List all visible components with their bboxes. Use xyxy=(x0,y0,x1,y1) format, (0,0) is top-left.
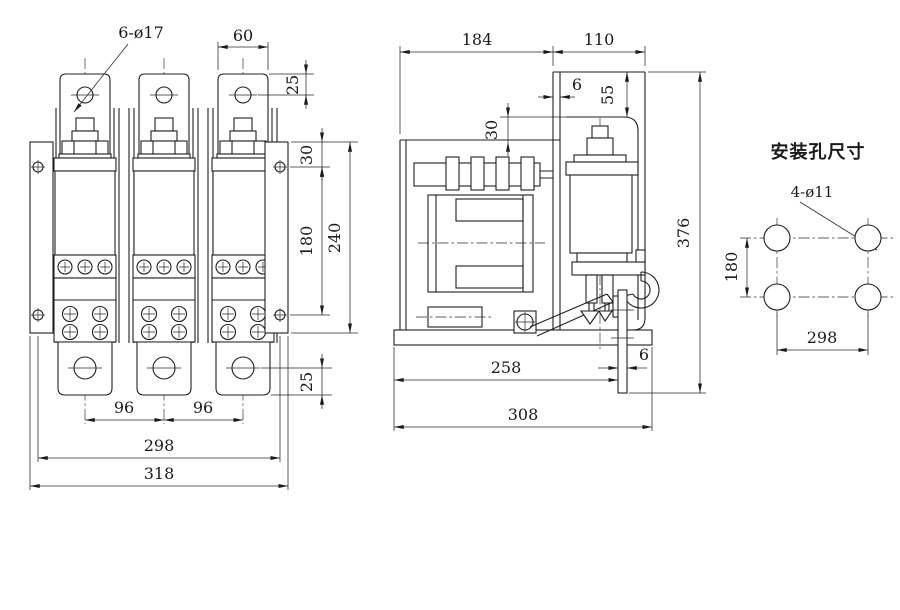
svg-text:180: 180 xyxy=(297,226,316,257)
svg-text:30: 30 xyxy=(297,145,316,165)
callout-4xd11: 4-ø11 xyxy=(791,183,834,201)
svg-text:25: 25 xyxy=(297,372,316,392)
coil xyxy=(418,195,545,292)
svg-text:60: 60 xyxy=(233,26,253,45)
dim-bracket-chain: 30 180 240 xyxy=(290,128,358,333)
dim-base-front: 258 xyxy=(394,347,618,384)
svg-text:376: 376 xyxy=(674,218,693,249)
side-view: 184 110 6 55 30 376 xyxy=(394,30,706,431)
mounting-bracket-left xyxy=(30,142,53,333)
dim-top-offset: 55 xyxy=(598,72,627,117)
dim-bottom-hole-offset: 25 xyxy=(261,354,332,409)
dim-depths: 184 110 xyxy=(400,30,645,134)
svg-text:318: 318 xyxy=(144,464,175,483)
svg-text:96: 96 xyxy=(114,398,134,417)
contactor-outline-drawing: 6-ø17 60 25 30 180 240 xyxy=(0,0,900,610)
svg-text:298: 298 xyxy=(144,436,175,455)
svg-text:180: 180 xyxy=(722,252,741,283)
mounting-bracket-right xyxy=(265,142,288,333)
mounting-title: 安装孔尺寸 xyxy=(771,141,866,163)
svg-text:298: 298 xyxy=(807,328,838,347)
svg-text:6: 6 xyxy=(572,75,582,94)
pole-1 xyxy=(54,58,116,424)
svg-text:96: 96 xyxy=(193,398,213,417)
svg-text:6: 6 xyxy=(639,345,649,364)
svg-text:308: 308 xyxy=(508,405,539,424)
dim-base-depth: 308 xyxy=(394,347,652,431)
mounting-holes xyxy=(740,218,893,317)
svg-text:30: 30 xyxy=(482,120,501,140)
dim-mount-horizontal: 298 xyxy=(777,312,868,355)
front-view: 6-ø17 60 25 30 180 240 xyxy=(30,23,358,490)
terminal-strip xyxy=(414,157,553,190)
svg-text:240: 240 xyxy=(325,223,344,254)
svg-text:55: 55 xyxy=(598,85,617,105)
svg-text:25: 25 xyxy=(283,75,302,95)
callout-6xd17: 6-ø17 xyxy=(118,23,164,42)
flexible-connector-hook xyxy=(624,272,659,308)
drawing-sheet: 6-ø17 60 25 30 180 240 xyxy=(0,0,900,610)
svg-text:110: 110 xyxy=(584,30,615,49)
mounting-hole-diagram: 安装孔尺寸 4-ø11 180 298 xyxy=(722,141,893,355)
svg-text:258: 258 xyxy=(491,358,522,377)
svg-text:184: 184 xyxy=(462,30,493,49)
pole-2 xyxy=(133,58,195,424)
dim-mount-vertical: 180 xyxy=(722,238,747,297)
